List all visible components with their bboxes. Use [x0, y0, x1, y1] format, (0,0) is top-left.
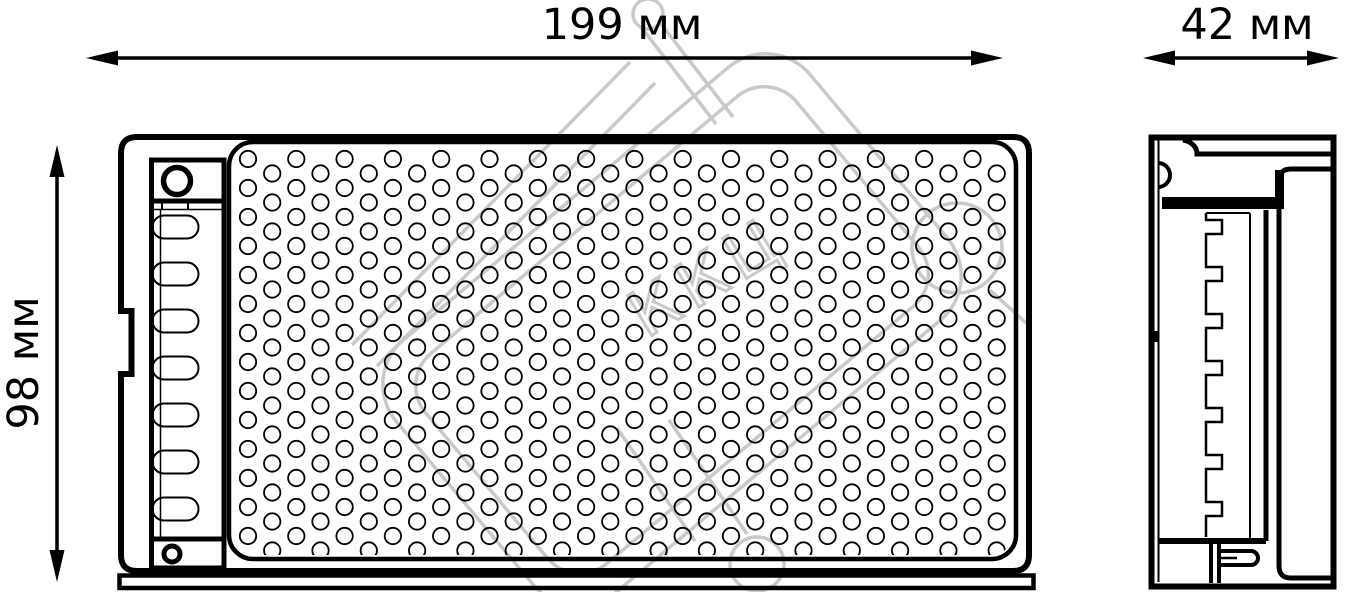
- side-shelf-bar: [1162, 197, 1284, 209]
- dimension-depth-label: 42 мм: [1180, 0, 1313, 50]
- perforated-panel-fill: [229, 142, 1016, 559]
- arrowhead-right-icon: [971, 51, 1003, 66]
- terminal-block-fill: [152, 160, 225, 568]
- drawing-canvas: ККЦ: [0, 0, 1345, 592]
- side-shelf-post: [1275, 170, 1284, 199]
- dimension-width: 199 мм: [86, 0, 1003, 66]
- dimension-height: 98 мм: [0, 145, 65, 582]
- arrowhead-down-icon: [50, 550, 65, 582]
- arrowhead-right-icon: [1307, 51, 1339, 66]
- dimension-width-label: 199 мм: [542, 0, 703, 50]
- arrowhead-left-icon: [86, 51, 118, 66]
- arrowhead-left-icon: [1143, 51, 1175, 66]
- arrowhead-up-icon: [50, 145, 65, 177]
- dimension-height-label: 98 мм: [0, 296, 49, 429]
- technical-drawing: ККЦ: [0, 0, 1345, 592]
- dimension-depth: 42 мм: [1143, 0, 1339, 66]
